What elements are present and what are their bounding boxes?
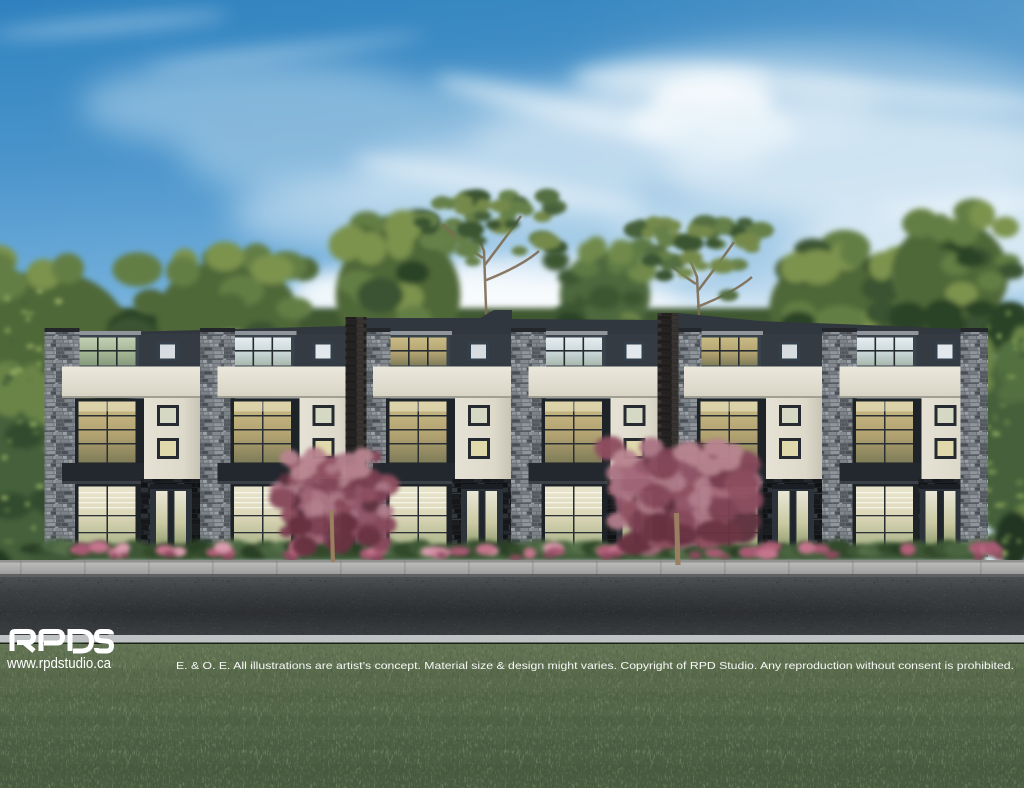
svg-text:E. & O. E. All illustrations a: E. & O. E. All illustrations are artist’… — [176, 660, 1014, 672]
svg-text:www.rpdstudio.ca: www.rpdstudio.ca — [6, 655, 111, 672]
